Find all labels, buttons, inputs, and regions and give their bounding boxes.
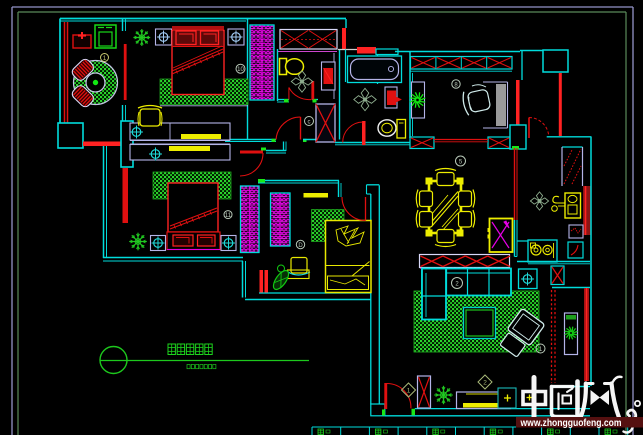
svg-text:2: 2 <box>483 380 487 387</box>
svg-text:c: c <box>308 119 311 125</box>
svg-text:10: 10 <box>237 67 244 73</box>
svg-text:www.zhongguofeng.com: www.zhongguofeng.com <box>520 418 622 429</box>
svg-text:D: D <box>298 243 303 249</box>
svg-text:11: 11 <box>225 213 232 219</box>
svg-text:1: 1 <box>407 388 411 395</box>
